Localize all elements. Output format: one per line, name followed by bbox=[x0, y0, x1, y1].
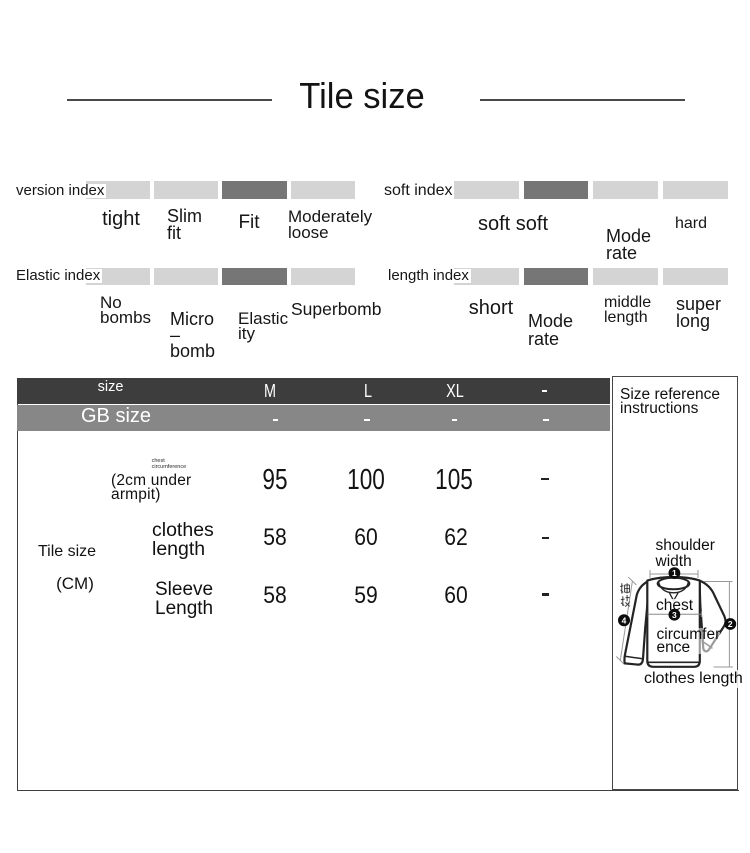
svg-text:1: 1 bbox=[672, 568, 677, 578]
svg-text:3: 3 bbox=[672, 610, 677, 620]
svg-text:2: 2 bbox=[728, 619, 733, 629]
svg-text:4: 4 bbox=[622, 615, 627, 625]
